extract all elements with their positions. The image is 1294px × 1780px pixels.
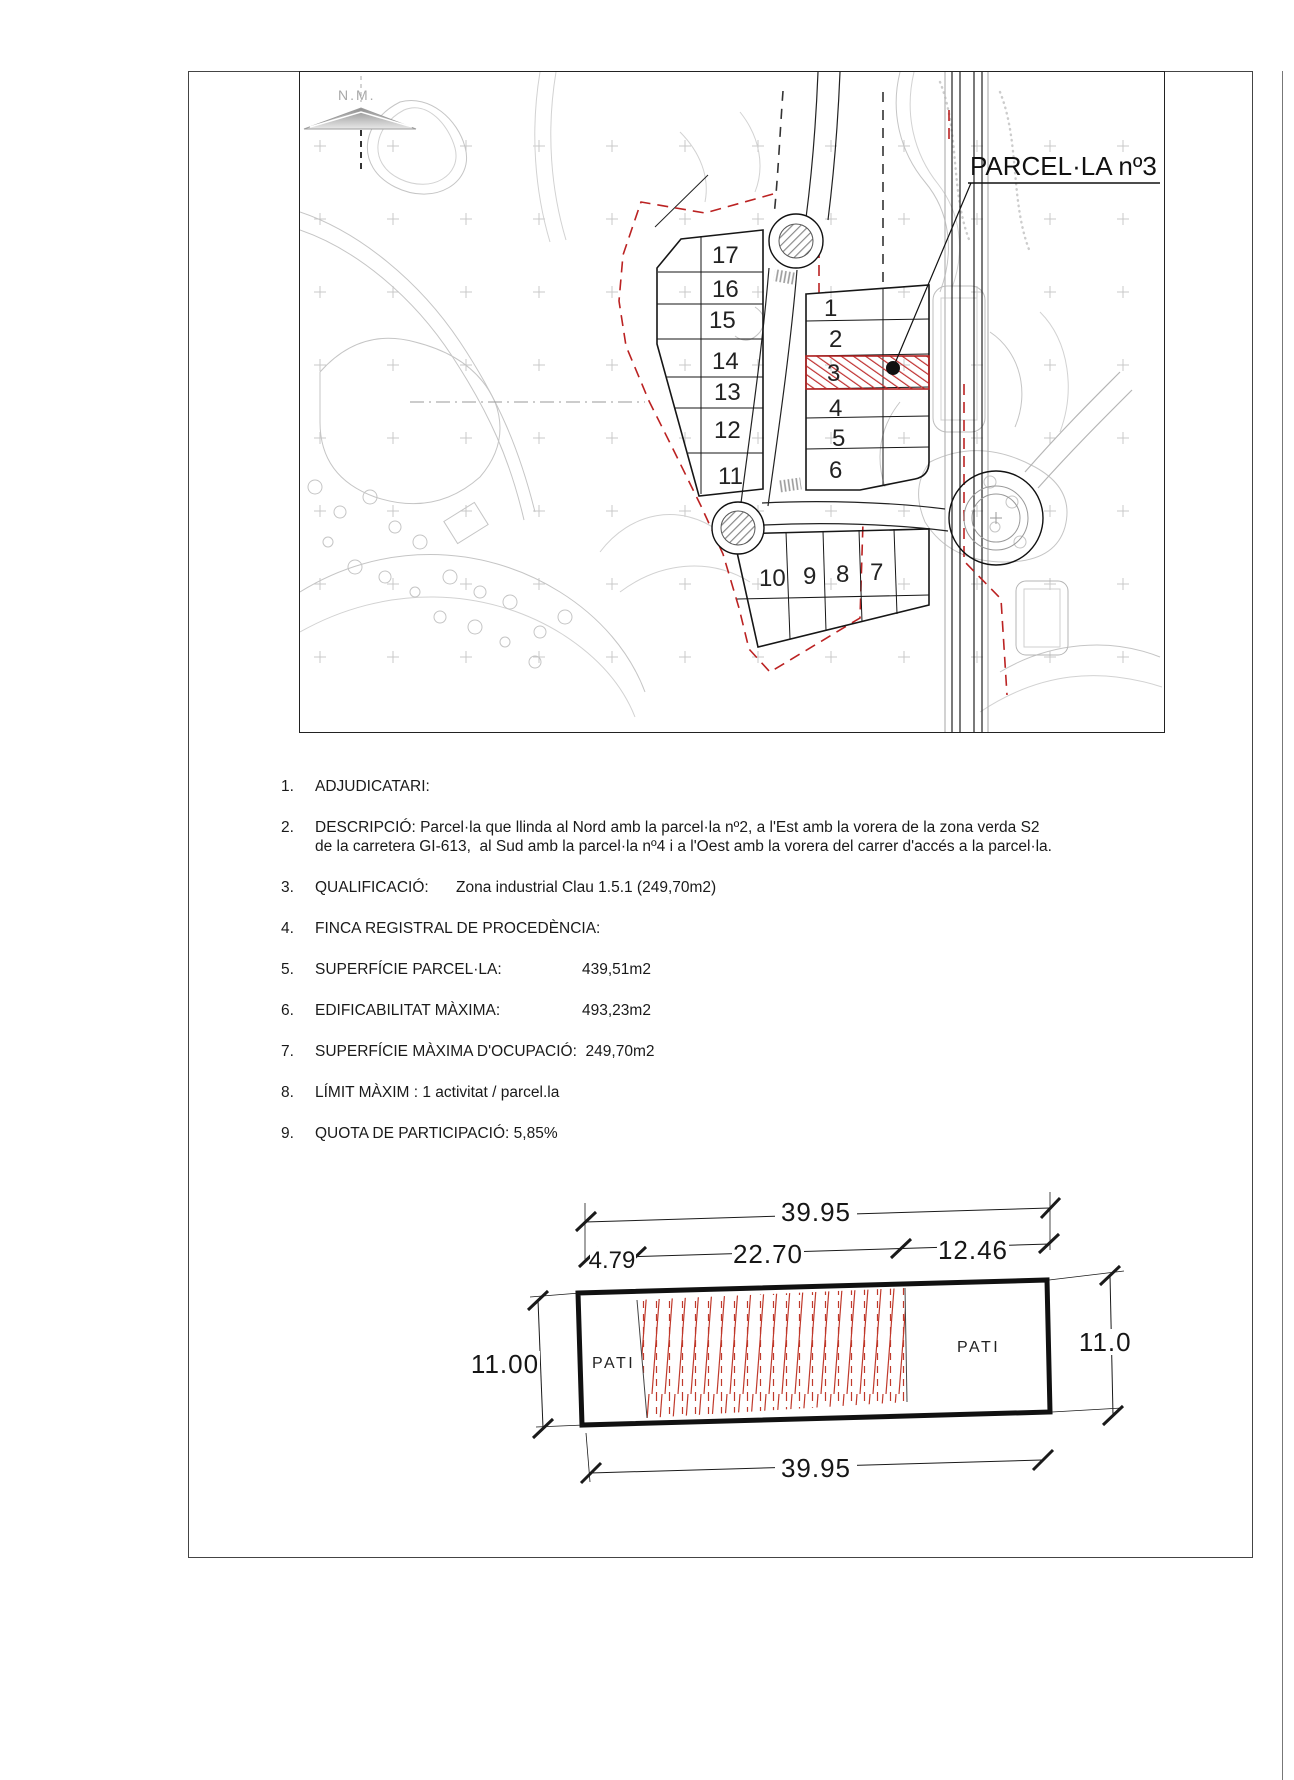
parcel-number-2: 2	[829, 326, 842, 353]
parcel-3-highlight	[806, 356, 929, 389]
item-label: FINCA REGISTRAL DE PROCEDÈNCIA:	[315, 920, 600, 937]
item-number: 5.	[281, 960, 315, 979]
document-sheet: N.M.	[0, 0, 1294, 1780]
item-number: 4.	[281, 919, 315, 938]
parcel-number-9: 9	[803, 563, 816, 590]
north-marker: N.M.	[304, 76, 416, 169]
dim-seg-left-value: 4.79	[589, 1247, 636, 1274]
parcel-number-17: 17	[712, 242, 739, 269]
parcel-plan-drawing: PATI PATI 39.95 4.79	[430, 1130, 1130, 1550]
pati-left-label: PATI	[592, 1355, 635, 1372]
item-number: 1.	[281, 777, 315, 796]
item-label: LÍMIT MÀXIM : 1 activitat / parcel.la	[315, 1084, 559, 1101]
dim-height-right-value: 11.00	[1079, 1327, 1130, 1357]
item-value: 249,70m2	[586, 1043, 655, 1060]
dim-seg-mid-value: 22.70	[733, 1239, 803, 1269]
roundabout-small	[712, 502, 764, 554]
parcel-number-4: 4	[829, 395, 842, 422]
item-number: 3.	[281, 878, 315, 897]
detail-item-2: 2. DESCRIPCIÓ: Parcel·la que llinda al N…	[281, 818, 1111, 856]
details-list: 1. ADJUDICATARI: 2. DESCRIPCIÓ: Parcel·l…	[281, 777, 1111, 1165]
dim-height-left: 11.00	[470, 1291, 584, 1438]
parcel-number-14: 14	[712, 348, 739, 375]
occupation-hatch	[637, 1288, 907, 1418]
vegetation	[308, 286, 1068, 668]
detail-item-5: 5. SUPERFÍCIE PARCEL·LA:439,51m2	[281, 960, 1111, 979]
detail-item-6: 6. EDIFICABILITAT MÀXIMA:493,23m2	[281, 1001, 1111, 1020]
sector-boundary-red	[619, 110, 1007, 695]
item-number: 2.	[281, 818, 315, 856]
parcel-number-8: 8	[836, 561, 849, 588]
roundabout-main	[949, 471, 1043, 565]
item-label: QUALIFICACIÓ:	[315, 878, 456, 897]
dim-segments: 4.79 22.70 12.46	[579, 1234, 1059, 1274]
roundabout-north	[769, 214, 823, 268]
item-number: 6.	[281, 1001, 315, 1020]
parcel-number-12: 12	[714, 417, 741, 444]
item-label: DESCRIPCIÓ: Parcel·la que llinda al Nord…	[315, 819, 1040, 836]
parcel-number-10: 10	[759, 565, 786, 592]
detail-item-3: 3. QUALIFICACIÓ:Zona industrial Clau 1.5…	[281, 878, 1111, 897]
item-label: SUPERFÍCIE MÀXIMA D'OCUPACIÓ:	[315, 1043, 577, 1060]
dim-seg-right-value: 12.46	[938, 1235, 1008, 1265]
parcel-plan-svg: PATI PATI 39.95 4.79	[430, 1130, 1130, 1550]
detail-item-8: 8. LÍMIT MÀXIM : 1 activitat / parcel.la	[281, 1083, 1111, 1102]
parcel-number-16: 16	[712, 276, 739, 303]
access-streets	[741, 72, 948, 531]
parcel-3-label: PARCEL·LA nº3	[970, 151, 1157, 181]
parcel-number-6: 6	[829, 457, 842, 484]
parcel-number-7: 7	[870, 559, 883, 586]
dim-bottom-total-value: 39.95	[781, 1453, 851, 1483]
dim-height-right: 11.00	[1049, 1266, 1130, 1425]
parcel-number-15: 15	[709, 307, 736, 334]
parcel-number-13: 13	[714, 379, 741, 406]
dim-height-left-value: 11.00	[471, 1349, 539, 1379]
detail-item-7: 7. SUPERFÍCIE MÀXIMA D'OCUPACIÓ: 249,70m…	[281, 1042, 1111, 1061]
item-number: 7.	[281, 1042, 315, 1061]
detail-item-1: 1. ADJUDICATARI:	[281, 777, 1111, 796]
parcel-number-11: 11	[718, 463, 743, 490]
parcel-number-1: 1	[824, 295, 837, 322]
parcel-number-3: 3	[827, 360, 840, 387]
item-number: 9.	[281, 1124, 315, 1143]
detail-item-4: 4. FINCA REGISTRAL DE PROCEDÈNCIA:	[281, 919, 1111, 938]
item-label: EDIFICABILITAT MÀXIMA:	[315, 1001, 582, 1020]
parcel-number-5: 5	[832, 425, 845, 452]
item-number: 8.	[281, 1083, 315, 1102]
axis-dashed-line	[774, 91, 783, 216]
item-label-line2: de la carretera GI-613, al Sud amb la pa…	[315, 838, 1052, 855]
item-label: SUPERFÍCIE PARCEL·LA:	[315, 960, 582, 979]
item-value: 493,23m2	[582, 1002, 651, 1019]
pati-right-label: PATI	[957, 1339, 1000, 1356]
dim-bottom-total: 39.95	[581, 1433, 1053, 1483]
north-label: N.M.	[338, 87, 376, 103]
site-map: N.M.	[299, 71, 1165, 733]
dim-top-total-value: 39.95	[781, 1197, 851, 1227]
site-map-svg: N.M.	[300, 72, 1164, 732]
item-value: 439,51m2	[582, 961, 651, 978]
crosswalk-2	[778, 478, 801, 493]
item-value: Zona industrial Clau 1.5.1 (249,70m2)	[456, 879, 716, 896]
crosswalk	[773, 269, 797, 285]
item-label: ADJUDICATARI:	[315, 778, 430, 795]
sheet-fold-line	[1282, 71, 1283, 1780]
east-parcel-block: 1 2 3 4 5 6	[806, 285, 929, 490]
